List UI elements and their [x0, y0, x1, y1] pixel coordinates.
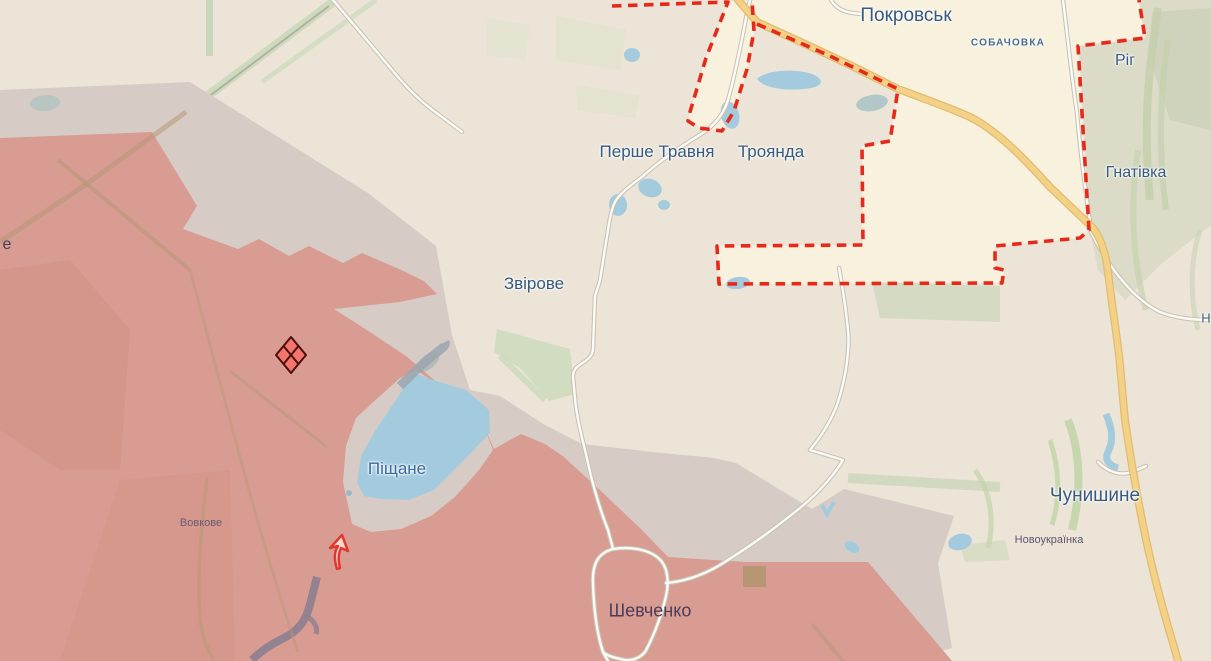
map-canvas[interactable]: Покровськ СОБАЧОВКА Ріг Гнатівка Перше Т… [0, 0, 1211, 661]
map-artwork [0, 0, 1211, 661]
